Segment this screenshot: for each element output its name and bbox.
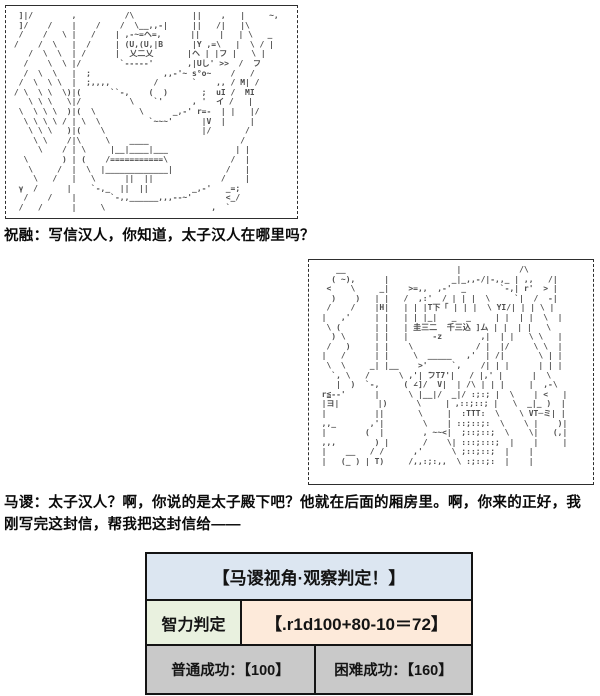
ascii-art-panel-zhurong: ]|/ , /\ || , | ~, ]/ / | / / \__,,-| ||… — [5, 5, 298, 219]
dice-roll-result: 【.r1d100+80-10＝72】 — [240, 601, 471, 644]
judgment-table-title: 【马谡视角·观察判定！】 — [147, 554, 471, 599]
thread-page: ]|/ , /\ || , | ~, ]/ / | / / \__,,-| ||… — [0, 0, 600, 696]
ascii-art-panel-masu: __ | /\ ( ~), | _|_,,-/|-,,_ | ,, /| < \… — [308, 259, 594, 485]
hard-success-threshold: 困难成功：【160】 — [314, 646, 471, 693]
skill-check-label: 智力判定 — [147, 601, 240, 644]
judgment-threshold-row: 普通成功：【100】 困难成功：【160】 — [147, 644, 471, 693]
ascii-art-zhurong: ]|/ , /\ || , | ~, ]/ / | / / \__,,-| ||… — [6, 6, 297, 217]
normal-success-threshold: 普通成功：【100】 — [147, 646, 314, 693]
judgment-roll-row: 智力判定 【.r1d100+80-10＝72】 — [147, 599, 471, 644]
judgment-table: 【马谡视角·观察判定！】 智力判定 【.r1d100+80-10＝72】 普通成… — [145, 552, 473, 695]
ascii-art-masu: __ | /\ ( ~), | _|_,,-/|-,,_ | ,, /| < \… — [309, 260, 593, 471]
dialogue-zhurong: 祝融：写信汉人，你知道，太子汉人在哪里吗？ — [4, 225, 434, 247]
dialogue-masu: 马谡：太子汉人？啊，你说的是太子殿下吧？他就在后面的厢房里。啊，你来的正好，我刚… — [4, 492, 593, 536]
